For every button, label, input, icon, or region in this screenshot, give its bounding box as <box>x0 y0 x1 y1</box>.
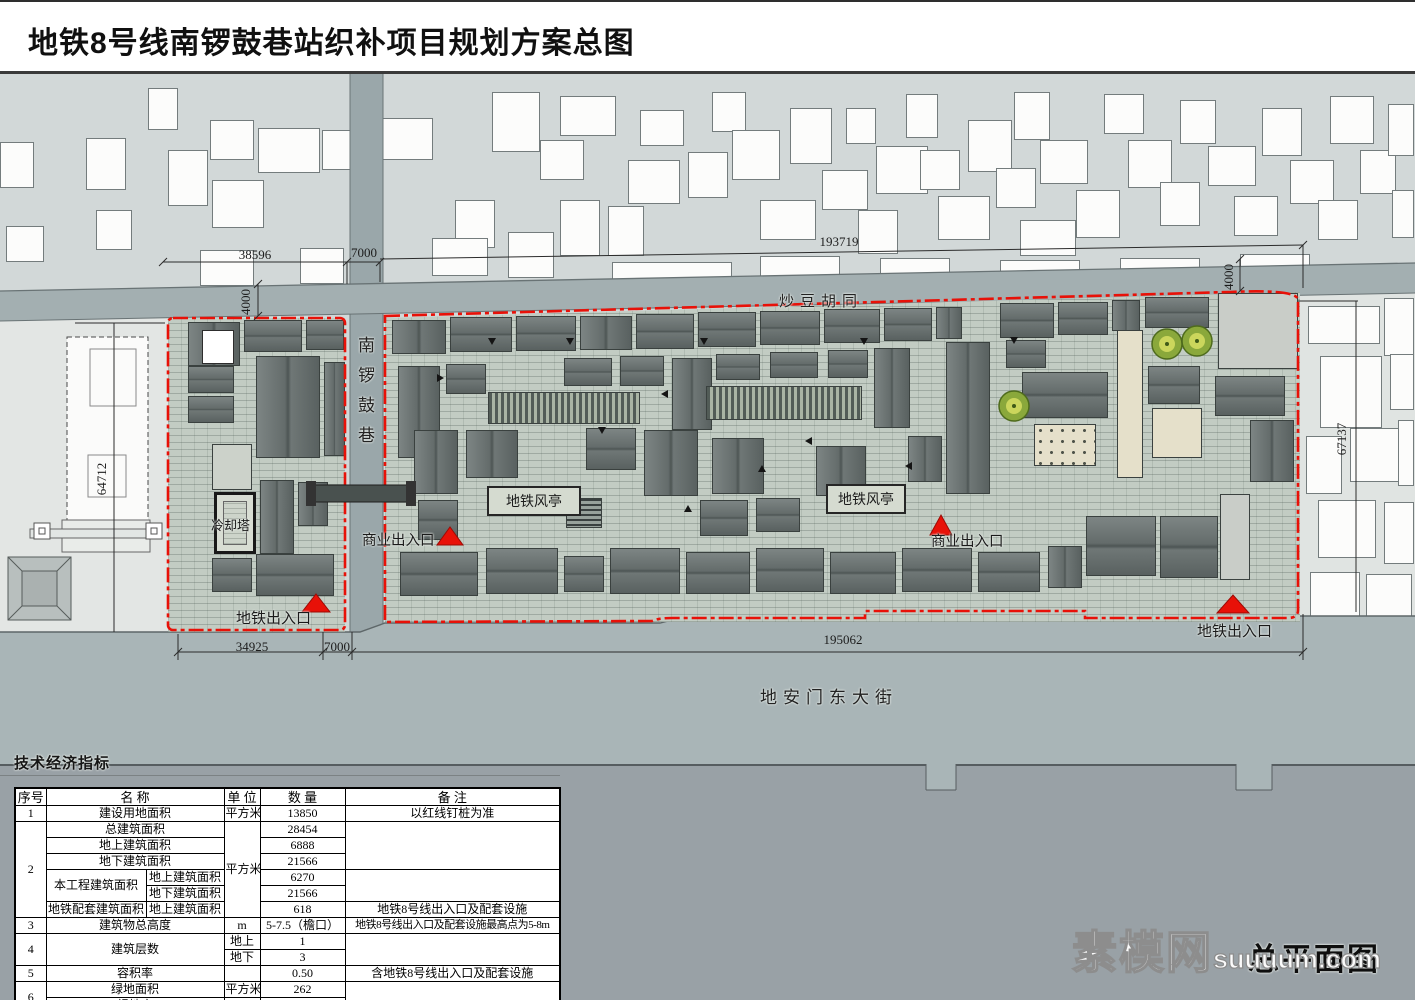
site-building <box>1006 340 1046 368</box>
context-building <box>1208 146 1256 186</box>
site-building <box>1218 293 1298 369</box>
site-building <box>716 354 760 380</box>
context-building <box>968 120 1012 172</box>
site-building <box>698 312 756 347</box>
context-building <box>1240 254 1310 280</box>
site-building <box>706 386 862 420</box>
site-building <box>188 396 234 423</box>
site-building <box>466 430 518 478</box>
site-building <box>1148 366 1200 404</box>
metro-vent-label-1: 地铁风亭 <box>487 486 581 516</box>
street-label-chaodou-hutong: 炒豆胡同 <box>779 290 863 311</box>
site-building <box>256 554 334 596</box>
site-building <box>1220 494 1250 580</box>
site-building <box>620 356 664 386</box>
site-building <box>244 320 302 352</box>
site-building <box>324 362 345 456</box>
site-building <box>1048 546 1082 588</box>
dimension-bottom-road: 7000 <box>312 639 362 655</box>
site-building <box>486 548 558 594</box>
context-building <box>732 130 780 180</box>
site-building <box>756 548 824 592</box>
tech-indicators-title: 技术经济指标 <box>14 752 110 773</box>
site-building <box>580 316 632 350</box>
site-building <box>446 364 486 394</box>
context-building <box>1366 574 1412 618</box>
context-building <box>1160 182 1200 226</box>
table-row: 4 建筑层数 地上1 <box>15 934 560 950</box>
metro-entrance-label-right: 地铁出入口 <box>1197 620 1272 641</box>
context-building <box>996 168 1036 208</box>
context-building <box>1234 196 1278 236</box>
context-building <box>1388 104 1414 156</box>
commercial-entrance-label-right: 商业出入口 <box>931 530 1004 551</box>
street-label-nanluoguxiang: 南锣鼓巷 <box>352 336 377 486</box>
context-building <box>1384 298 1414 356</box>
site-building <box>712 438 764 494</box>
tech-indicators-underline <box>0 775 560 776</box>
site-building <box>874 348 910 428</box>
table-row: 3建筑物总高度 m5-7.5（檐口） 地铁8号线出入口及配套设施最高点为5-8m <box>15 918 560 934</box>
site-building <box>306 320 344 350</box>
table-row: 5容积率 0.50含地铁8号线出入口及配套设施 <box>15 966 560 982</box>
site-building <box>260 480 294 554</box>
site-building <box>946 342 990 494</box>
table-row: 地铁配套建筑面积 地上建筑面积 618 地铁8号线出入口及配套设施 <box>15 902 560 918</box>
site-building <box>450 317 512 352</box>
context-building <box>1310 572 1360 618</box>
context-building <box>1318 500 1376 558</box>
site-building <box>1058 302 1108 335</box>
site-building <box>902 548 972 592</box>
context-building <box>938 196 990 240</box>
context-building <box>880 258 950 284</box>
site-building <box>636 314 694 349</box>
site-building <box>400 552 478 596</box>
metro-vent-label-2: 地铁风亭 <box>826 484 906 514</box>
metro-entrance-label-left: 地铁出入口 <box>236 607 311 628</box>
cooling-tower-label: 冷却塔 <box>211 515 250 534</box>
site-building <box>1250 420 1294 482</box>
dimension-top-right: 193719 <box>806 234 872 250</box>
site-building <box>212 444 252 490</box>
context-building <box>760 256 840 282</box>
context-building <box>1076 190 1120 238</box>
site-building <box>564 358 612 386</box>
context-building <box>212 180 264 228</box>
context-building <box>920 150 960 190</box>
context-building <box>628 160 680 204</box>
dimension-east-block: 67137 <box>1334 414 1350 464</box>
context-building <box>1350 428 1402 482</box>
drawing-sheet: 炒豆胡同 南锣鼓巷 地安门东大街 地铁风亭 地铁风亭 冷却塔 商业出入口 商业出… <box>0 0 1415 1000</box>
site-building <box>1145 297 1209 328</box>
watermark-latin: suuuum.com <box>1213 944 1381 974</box>
context-building <box>612 262 732 286</box>
context-building <box>0 142 34 188</box>
site-building <box>824 309 880 343</box>
context-building <box>608 206 644 256</box>
context-building <box>1120 258 1200 284</box>
site-building <box>1086 516 1156 576</box>
context-building <box>1128 140 1172 188</box>
dimension-road-width-left: 4000 <box>238 282 254 322</box>
site-building <box>392 320 446 354</box>
context-building <box>1000 260 1080 284</box>
site-building <box>1022 372 1108 418</box>
site-building <box>756 498 800 532</box>
table-row: 2 总建筑面积 平方米 28454 <box>15 822 560 838</box>
context-building <box>688 152 728 198</box>
site-building <box>1034 424 1096 466</box>
context-building <box>210 120 254 160</box>
context-building <box>508 232 554 278</box>
street-label-dianmen-east-street: 地安门东大街 <box>760 683 898 708</box>
context-building <box>375 118 433 160</box>
context-building <box>822 170 868 210</box>
site-building <box>1112 300 1140 331</box>
page-title: 地铁8号线南锣鼓巷站织补项目规划方案总图 <box>28 18 635 62</box>
context-building <box>906 94 938 138</box>
site-building <box>828 350 868 378</box>
context-building <box>1384 502 1414 564</box>
context-building <box>712 92 746 132</box>
context-building <box>168 150 208 206</box>
site-building <box>936 307 962 339</box>
context-building <box>846 108 876 144</box>
site-building <box>1160 516 1218 578</box>
context-building <box>1308 306 1380 344</box>
site-building <box>770 352 818 378</box>
site-building <box>1000 303 1054 338</box>
site-building <box>644 430 698 496</box>
tech-indicators-table: 序号 名 称 单 位 数 量 备 注 1建设用地面积 平方米13850以红线钉桩… <box>14 787 561 1000</box>
context-building <box>1104 94 1144 134</box>
context-building <box>1290 160 1334 204</box>
context-building <box>86 138 126 190</box>
site-building <box>908 436 942 482</box>
context-building <box>148 88 178 130</box>
site-building <box>1152 408 1202 458</box>
context-building <box>322 130 360 170</box>
context-building <box>1180 100 1216 144</box>
table-row: 1建设用地面积 平方米13850以红线钉桩为准 <box>15 806 560 822</box>
site-building <box>1215 376 1285 416</box>
context-building <box>492 92 540 152</box>
dimension-bottom-left: 34925 <box>222 639 282 655</box>
context-building <box>1398 420 1414 486</box>
site-building <box>212 558 252 592</box>
dimension-west-building: 64712 <box>94 454 110 504</box>
context-building <box>560 96 616 136</box>
west-context-area <box>0 300 168 634</box>
site-building <box>686 552 750 594</box>
site-building <box>516 316 576 351</box>
watermark-cn: 素模网 <box>1072 927 1213 978</box>
context-building <box>1320 356 1382 428</box>
context-building <box>790 108 832 164</box>
title-bar: 地铁8号线南锣鼓巷站织补项目规划方案总图 <box>0 0 1415 74</box>
site-building <box>298 482 328 526</box>
context-building <box>540 140 584 180</box>
context-building <box>258 128 320 173</box>
dimension-bottom-right: 195062 <box>810 632 876 648</box>
site-building <box>700 500 748 536</box>
site-building <box>488 392 640 424</box>
table-header-row: 序号 名 称 单 位 数 量 备 注 <box>15 788 560 806</box>
site-building <box>830 552 896 594</box>
dimension-top-left: 38596 <box>225 247 285 263</box>
site-building <box>978 552 1040 592</box>
site-building <box>256 356 320 458</box>
site-building <box>202 330 234 364</box>
context-building <box>1020 220 1076 256</box>
context-building <box>1318 200 1358 240</box>
context-building <box>1040 140 1088 184</box>
context-building <box>96 210 132 250</box>
site-building <box>564 556 604 592</box>
commercial-entrance-label-left: 商业出入口 <box>362 529 435 550</box>
dimension-top-road: 7000 <box>338 245 390 261</box>
site-building <box>760 311 820 345</box>
context-building <box>1392 190 1414 238</box>
context-building <box>1330 96 1374 144</box>
context-building <box>1262 108 1302 156</box>
site-building <box>884 308 932 341</box>
site-building <box>1117 330 1143 478</box>
context-building <box>432 238 488 276</box>
site-building <box>188 366 234 393</box>
context-building <box>1014 92 1050 140</box>
watermark: 素模网suuuum.com <box>1072 916 1381 981</box>
dimension-road-width-right: 4000 <box>1221 257 1237 297</box>
table-row: 6 绿地面积 平方米 262 <box>15 982 560 998</box>
site-building <box>586 428 636 470</box>
context-building <box>1360 150 1396 194</box>
site-building <box>414 430 458 494</box>
context-building <box>640 110 684 146</box>
site-building <box>610 548 680 594</box>
table-row: 本工程建筑面积 地上建筑面积 6270 <box>15 870 560 886</box>
context-building <box>6 226 44 262</box>
context-building <box>560 200 600 256</box>
context-building <box>1390 354 1414 410</box>
